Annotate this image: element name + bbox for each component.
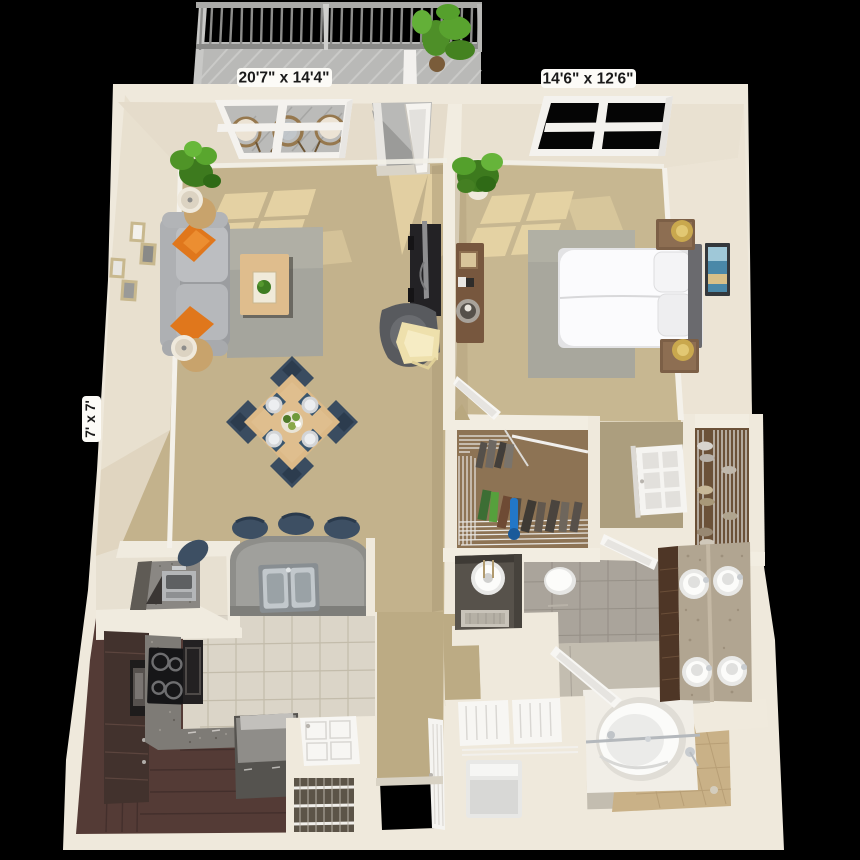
svg-text:14'6" x 12'6": 14'6" x 12'6" [542, 71, 633, 88]
svg-text:20'7" x 14'4": 20'7" x 14'4" [238, 70, 329, 87]
svg-text:7' x 7': 7' x 7' [82, 400, 98, 438]
